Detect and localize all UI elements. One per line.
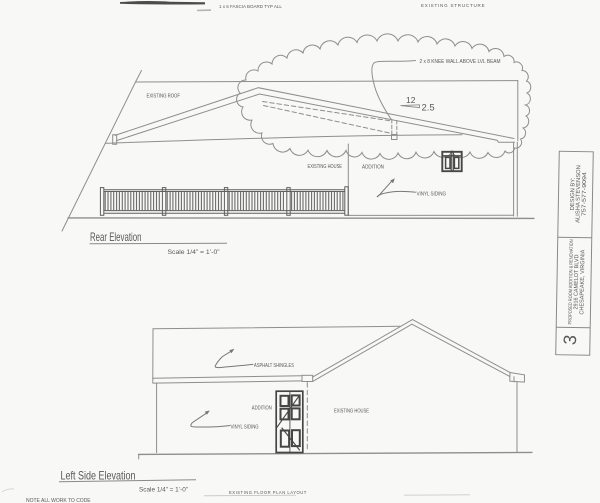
svg-text:EXISTING HOUSE: EXISTING HOUSE — [334, 408, 369, 414]
svg-text:12: 12 — [406, 95, 416, 105]
svg-text:NOTE ALL WORK TO CODE: NOTE ALL WORK TO CODE — [26, 498, 91, 503]
svg-text:VINYL SIDING: VINYL SIDING — [231, 424, 259, 430]
svg-text:2.5: 2.5 — [422, 102, 435, 113]
svg-text:Scale 1/4” = 1’-0”: Scale 1/4” = 1’-0” — [139, 487, 188, 494]
svg-text:VINYL SIDING: VINYL SIDING — [417, 192, 447, 198]
svg-text:3: 3 — [560, 334, 581, 346]
svg-text:1 x 6 FASCIA BOARD TYP ALL: 1 x 6 FASCIA BOARD TYP ALL — [219, 4, 282, 9]
svg-text:EXISTING FLOOR PLAN LAYOUT: EXISTING FLOOR PLAN LAYOUT — [229, 490, 307, 495]
svg-text:EXISTING ROOF: EXISTING ROOF — [147, 94, 181, 100]
svg-text:CHESAPEAKE, VIRGINIA: CHESAPEAKE, VIRGINIA — [579, 249, 586, 314]
svg-text:Scale 1/4” = 1’-0”: Scale 1/4” = 1’-0” — [168, 249, 220, 256]
svg-text:ADDITION: ADDITION — [252, 406, 272, 412]
svg-text:2 x 8 KNEE WALL ABOVE LVL BEAM: 2 x 8 KNEE WALL ABOVE LVL BEAM — [420, 59, 501, 65]
svg-text:ADDITION: ADDITION — [362, 165, 384, 171]
svg-text:EXISTING HOUSE: EXISTING HOUSE — [308, 164, 343, 170]
svg-text:ASPHALT SHINGLES: ASPHALT SHINGLES — [254, 363, 294, 369]
svg-text:EXISTING STRUCTURE: EXISTING STRUCTURE — [421, 3, 485, 8]
svg-text:757-577-9094: 757-577-9094 — [581, 171, 588, 216]
svg-text:Rear Elevation: Rear Elevation — [90, 230, 142, 244]
